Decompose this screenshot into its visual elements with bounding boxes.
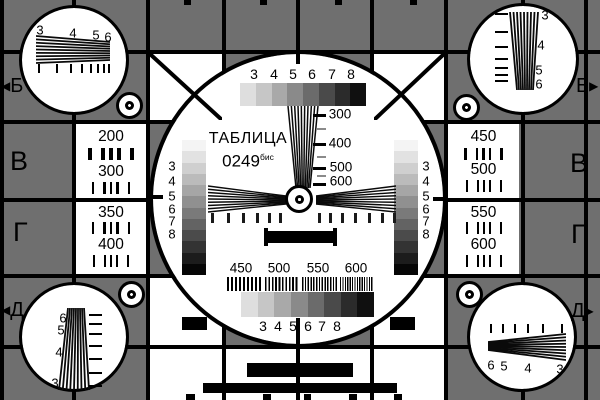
frequency-number: 550 — [448, 205, 519, 221]
bullseye-top-right — [453, 94, 480, 121]
burst-strip-500 — [265, 277, 298, 291]
frequency-number: 450 — [448, 129, 519, 145]
cropped-digit-fragment — [335, 0, 342, 5]
grayscale-bottom — [241, 292, 374, 317]
frequency-number: 350 — [76, 205, 146, 221]
grayscale-strip-left — [182, 140, 206, 275]
bullseye-bottom-right — [456, 281, 483, 308]
cropped-letter-fragment — [349, 394, 357, 400]
row-marker-d-left: ◀Д — [1, 299, 24, 321]
frequency-number: 300 — [76, 164, 146, 180]
row-marker-v-left: В — [10, 146, 28, 176]
row-marker-v-right: В — [570, 148, 588, 178]
line-pattern — [448, 148, 519, 160]
cropped-digit-fragment — [260, 0, 267, 5]
line-pattern — [76, 222, 146, 234]
table-title: ТАБЛИЦА 0249бис — [200, 130, 296, 171]
number-block-right-top: 450 500 — [448, 124, 519, 198]
sync-reference-bar — [264, 228, 337, 246]
black-reference-rect-left — [182, 317, 207, 330]
cropped-digit-fragment — [184, 0, 191, 5]
bottom-bar-short — [247, 363, 353, 377]
grayscale-strip-right — [394, 140, 418, 275]
line-pattern — [76, 182, 146, 194]
frequency-number: 600 — [448, 237, 519, 253]
burst-strip-600 — [340, 277, 373, 291]
corner-wedge-bottom-right — [488, 332, 566, 362]
burst-strip-550 — [302, 277, 337, 291]
frequency-number: 400 — [76, 237, 146, 253]
bottom-bar-long — [203, 383, 397, 393]
row-marker-b-right: Б▶ — [576, 75, 598, 97]
frequency-wedge-left — [208, 184, 286, 214]
cropped-letter-fragment — [394, 394, 402, 400]
bullseye-top-left — [116, 92, 143, 119]
line-pattern — [448, 222, 519, 234]
left-arrow-icon: ◀ — [1, 299, 10, 321]
left-arrow-icon: ◀ — [1, 75, 10, 97]
corner-wedge-bottom-left — [58, 308, 90, 390]
black-reference-rect-right — [390, 317, 415, 330]
frequency-number: 500 — [448, 162, 519, 178]
cropped-letter-fragment — [304, 394, 311, 400]
frequency-wedge-right — [316, 184, 396, 214]
table-name: ТАБЛИЦА — [200, 130, 296, 148]
line-pattern — [448, 255, 519, 267]
row-marker-b-left: ◀Б — [1, 75, 23, 97]
cropped-letter-fragment — [186, 394, 195, 400]
bullseye-bottom-left — [118, 281, 145, 308]
number-block-right-bottom: 550 600 — [448, 202, 519, 274]
center-target — [285, 185, 313, 213]
corner-wedge-top-left — [36, 34, 110, 64]
row-marker-d-right: Д▶ — [571, 300, 594, 322]
right-arrow-icon: ▶ — [589, 75, 598, 97]
table-number-suffix: бис — [260, 152, 274, 162]
line-pattern — [76, 148, 146, 160]
grayscale-top — [240, 83, 366, 106]
tv-test-pattern-card: 200 300 350 400 450 500 550 600 345678 — [0, 0, 600, 400]
line-pattern — [76, 255, 146, 267]
row-marker-g-right: Г — [571, 219, 586, 249]
number-block-left-bottom: 350 400 — [76, 202, 146, 274]
cropped-digit-fragment — [410, 0, 417, 5]
row-marker-g-left: Г — [13, 217, 28, 247]
frequency-number: 200 — [76, 129, 146, 145]
number-block-left-top: 200 300 — [76, 124, 146, 198]
table-number: 0249бис — [200, 148, 296, 171]
burst-strip-450 — [227, 277, 262, 291]
line-pattern — [448, 180, 519, 192]
cropped-letter-fragment — [263, 394, 271, 400]
right-arrow-icon: ▶ — [585, 300, 594, 322]
corner-wedge-top-right — [508, 12, 540, 90]
